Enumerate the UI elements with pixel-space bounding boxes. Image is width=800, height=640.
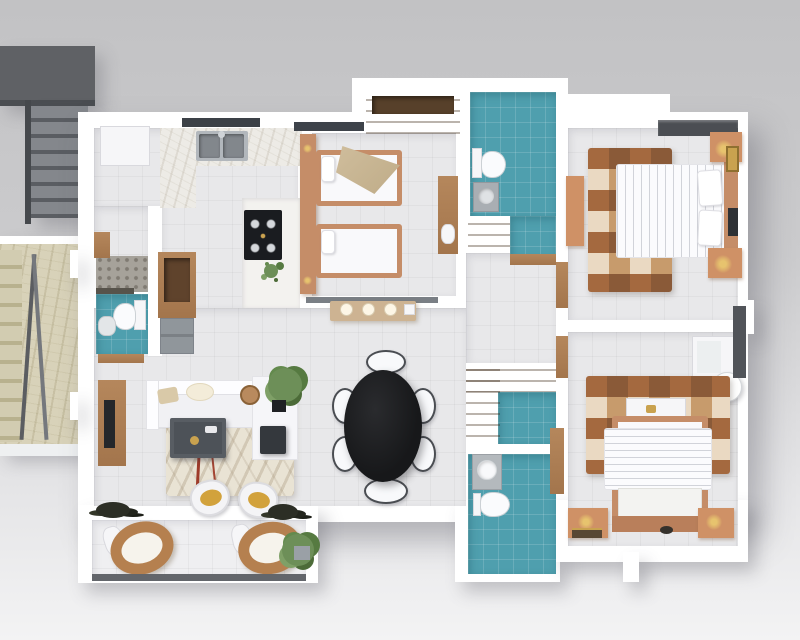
closet-floor <box>498 392 556 444</box>
kitchen-window <box>182 118 260 127</box>
sideboard-dish <box>404 304 415 315</box>
kitchen-plant <box>264 264 278 278</box>
sink-basin-left <box>199 134 220 158</box>
coffee-table-remote <box>205 426 217 433</box>
sideboard-plate-2 <box>362 303 375 316</box>
landing-bottom-step <box>0 444 80 456</box>
kids-wardrobe-opening <box>372 96 454 114</box>
family-toilet-bowl <box>481 151 506 178</box>
tv-screen <box>104 400 115 448</box>
sofa-armrest <box>146 380 159 430</box>
master-dresser <box>566 176 584 246</box>
closet-shelf-left <box>466 360 500 444</box>
window-shrub-left <box>96 502 130 518</box>
coffee-table-gold-decor <box>190 436 199 445</box>
master-lamp-2 <box>714 255 732 273</box>
floor-plan-scene <box>0 0 800 640</box>
family-bathroom-floor-l <box>510 216 556 256</box>
hallway-floor <box>466 253 556 363</box>
kitchen-cabinet-opening <box>164 258 190 302</box>
living-plant <box>268 368 302 402</box>
master-pillow-2 <box>697 209 723 246</box>
gas-stove <box>244 210 282 260</box>
guest-toilet-bowl <box>113 303 136 330</box>
balcony-corner-block <box>294 546 310 560</box>
left-wall-pilaster-2 <box>70 392 78 420</box>
guest-toilet-sink <box>98 316 116 336</box>
accent-chair-2-cushion <box>247 490 272 510</box>
sofa-tray <box>240 385 260 405</box>
guest-toilet-threshold <box>98 354 144 363</box>
washing-machine-line <box>160 334 194 337</box>
bed2-lamp-right <box>706 514 722 530</box>
family-vanity-basin <box>478 188 494 204</box>
master-pillow-1 <box>697 169 723 207</box>
kids-lamp-bottom <box>303 276 312 285</box>
bedroom2-door-threshold <box>556 336 568 378</box>
sideboard-plate-1 <box>340 303 353 316</box>
bed2-drawer-dark <box>572 528 602 538</box>
side-table-dark <box>260 426 286 454</box>
master-picture-frame <box>726 146 739 172</box>
bath2-basin <box>477 460 497 480</box>
window-shrub-right <box>268 504 298 520</box>
bed2-phone <box>660 526 673 534</box>
family-bathroom-threshold <box>510 254 556 265</box>
dining-chair-bottom <box>364 478 408 504</box>
bed2-wall-accent <box>733 306 746 378</box>
kids-window <box>294 122 364 131</box>
living-planter <box>272 400 286 412</box>
stairwell-platform <box>0 46 95 104</box>
stairwell-handrail <box>25 100 31 224</box>
entry-vanity <box>94 232 110 258</box>
kids-desk-chair <box>441 224 455 244</box>
master-door-threshold <box>556 262 568 308</box>
master-wall-tv <box>728 208 738 236</box>
bed2-bench-gold-decor <box>646 405 656 413</box>
left-wall-pilaster-1 <box>70 250 78 278</box>
closet-wardrobe-right <box>550 428 564 494</box>
shower-mosaic-floor <box>96 256 148 292</box>
master-top-bump <box>556 94 670 128</box>
twin-bed-2-pillow <box>321 230 335 254</box>
kids-lamp-top <box>303 144 312 153</box>
bottom-wall-stub <box>623 552 639 582</box>
sink-faucet <box>218 131 225 138</box>
right-wall-pilaster <box>746 300 754 334</box>
bed2-armchair-seat <box>697 341 721 373</box>
sideboard-plate-3 <box>384 303 397 316</box>
fridge <box>100 126 150 166</box>
twin-bed-1-pillow <box>321 156 335 182</box>
sink-basin-right <box>223 134 244 158</box>
second-bed-duvet <box>604 428 712 490</box>
bath2-toilet-bowl <box>480 492 510 517</box>
accent-chair-1-cushion <box>198 487 223 508</box>
kids-wall-shelf <box>300 134 316 294</box>
family-bathroom-cabinet <box>468 214 510 256</box>
balcony-railing <box>92 574 306 581</box>
shower-mat <box>96 288 134 294</box>
dining-table <box>344 370 422 482</box>
sofa-cushion-cream <box>186 383 214 401</box>
landing-steps <box>0 250 22 442</box>
